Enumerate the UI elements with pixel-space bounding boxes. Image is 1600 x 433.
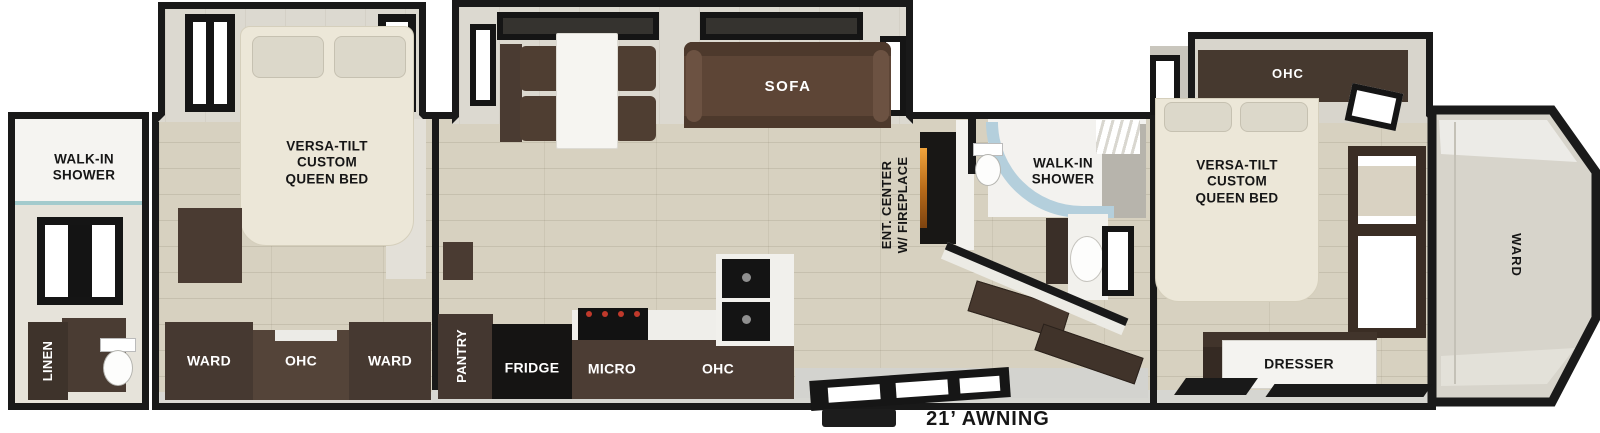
rear-bedroom-tv-cabinet [178,208,242,283]
rear-ohc-counter-notch [275,330,337,341]
awning-label: 21’ AWNING [926,407,1050,431]
front-ward-label: WARD [1508,233,1524,277]
step-tread [896,379,949,398]
rear-shower-label: WALK-IN SHOWER [53,152,116,185]
linen-label: LINEN [40,341,56,382]
kitchen-slide-skylight-right [700,12,863,40]
dinette-chair [614,96,656,141]
rear-bed-label: VERSA-TILT CUSTOM QUEEN BED [286,138,369,187]
window-mullion [206,22,214,104]
rear-toilet [103,350,133,386]
window-transom-pane [1358,166,1416,216]
dinette-chair [614,46,656,91]
ent-center-label: ENT. CENTER W/ FIREPLACE [879,157,911,254]
front-bedroom-big-window [1348,146,1426,338]
sofa-arm-right [873,50,889,122]
dinette-hutch [500,44,522,142]
rear-ohc-label: OHC [285,352,317,369]
burner [634,311,640,317]
sofa-arm-left [686,50,702,122]
pillow [334,36,406,78]
rear-bed-window-left [185,14,235,112]
rear-ward-right-label: WARD [368,352,412,369]
floor-mat [1174,378,1258,395]
rear-bath-window [37,217,123,305]
window-mullion [1358,224,1416,236]
drawer-divider [722,298,770,302]
micro-label: MICRO [588,360,636,377]
pillow [252,36,324,78]
dresser-label: DRESSER [1264,355,1334,372]
step-tread [828,384,881,403]
cooktop [578,308,648,342]
mid-bath-window [1102,226,1134,296]
burner [618,311,624,317]
dinette-table [556,33,618,149]
mid-shower-label: WALK-IN SHOWER [1032,156,1095,189]
sofa-label: SOFA [765,78,812,96]
step-tread [959,376,1000,394]
front-ohc-label: OHC [1272,66,1304,82]
island-drawers [722,259,770,341]
pantry-label: PANTRY [454,329,470,383]
fireplace-glow [920,148,927,228]
vanity-sink [1070,236,1104,282]
mid-toilet [975,154,1001,186]
drawer-knob [742,315,751,324]
fridge-label: FRIDGE [505,359,560,376]
rv-floorplan: WARD WALK-IN SHOWER LINEN VERSA-TILT CUS… [0,0,1600,433]
sofa-back [684,42,891,56]
pillow [1164,102,1232,132]
pantry-ohc-cabinet [443,242,473,280]
front-bed-label: VERSA-TILT CUSTOM QUEEN BED [1196,157,1279,206]
burner [602,311,608,317]
kitchen-slide-window-left [470,24,496,106]
pillow [1240,102,1308,132]
sofa-seat-front [684,116,891,128]
entry-step-box [822,409,896,427]
burner [586,311,592,317]
floor-mat [1265,384,1432,397]
window-mullion [68,225,92,297]
rear-ward-left-label: WARD [187,352,231,369]
drawer-knob [742,273,751,282]
kitchen-ohc-label: OHC [702,360,734,377]
mid-bath-cabinet [1046,218,1070,284]
